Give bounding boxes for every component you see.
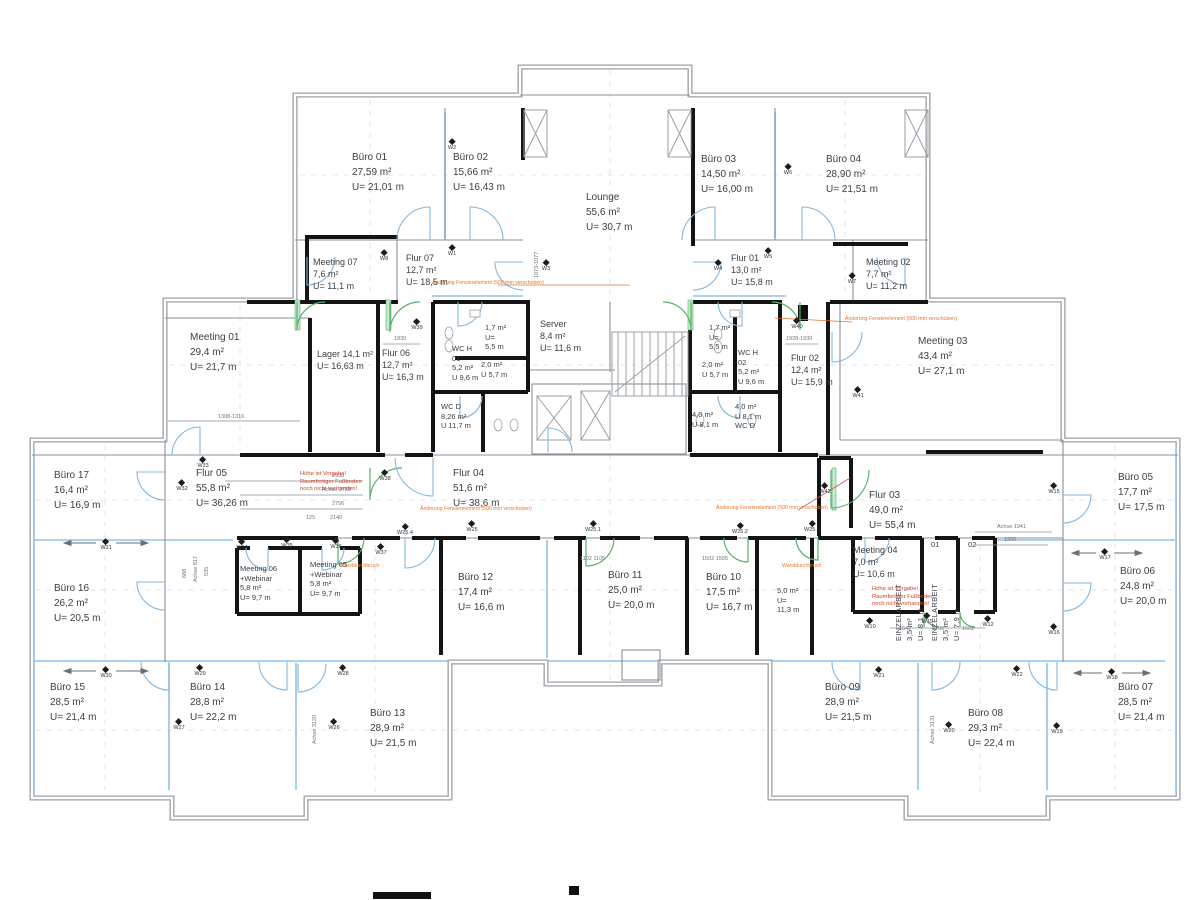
room-label-text: Flur 06 (382, 347, 424, 359)
revision-note-orange: Wanddurchbruch (782, 563, 821, 569)
room-label-vorraum-rechts: 2,0 m²U 5,7 m (702, 360, 728, 379)
window-marker-W25: W25 (466, 521, 477, 533)
window-marker-icon (924, 612, 930, 618)
dimension-text: 1928-1930 (786, 336, 812, 342)
room-label-text: Meeting 06 (240, 564, 277, 574)
window-marker-W38: W38 (379, 470, 390, 482)
room-label-abstell-links: 1,7 m²U=5,5 m (485, 323, 506, 352)
room-label-text: U= 20,0 m (1120, 594, 1166, 609)
window-marker-label: W15 (1048, 489, 1059, 495)
room-label-text: 28,90 m² (826, 167, 878, 182)
room-label-meeting-02: Meeting 027,7 m²U= 11,2 m (866, 256, 911, 292)
room-label-text: U= 21,01 m (352, 180, 404, 195)
room-label-text: U= 22,2 m (190, 710, 236, 725)
window-marker-icon (985, 615, 991, 621)
room-label-text: U= 9,7 m (310, 589, 347, 599)
room-label-text: 29,4 m² (190, 345, 239, 360)
window-marker-label: W40 (791, 324, 802, 330)
room-label-meeting-04: Meeting 047,0 m²U= 10,6 m (853, 544, 898, 580)
room-label-text: 24,8 m² (1120, 579, 1166, 594)
room-label-buero-06: Büro 0624,8 m²U= 20,0 m (1120, 564, 1166, 609)
room-label-text: Meeting 02 (866, 256, 911, 268)
room-label-server: Server8,4 m²U= 11,6 m (540, 318, 581, 354)
room-label-text: 11,3 m (777, 605, 799, 615)
window-marker-W7: W7 (848, 273, 856, 285)
window-marker-icon (381, 249, 387, 255)
window-marker-W25.1: W25.1 (585, 521, 601, 533)
room-label-text: 7,6 m² (313, 268, 358, 280)
window-marker-label: W21 (873, 673, 884, 679)
room-label-buero-03: Büro 0314,50 m²U= 16,00 m (701, 152, 753, 197)
room-label-text: 49,0 m² (869, 503, 915, 518)
room-label-flur-06: Flur 0612,7 m²U= 16,3 m (382, 347, 424, 383)
room-label-text: 55,6 m² (586, 205, 632, 220)
window-marker-icon (176, 718, 182, 724)
window-marker-label: W35 (281, 543, 292, 549)
window-marker-W29: W29 (194, 665, 205, 677)
window-marker-W1: W1 (448, 245, 456, 257)
room-label-text: 5,5 m (709, 342, 730, 352)
window-marker-W11: W11 (922, 613, 933, 625)
dimension-text: 1073-1077 (534, 252, 540, 278)
dimension-text: 1830 (394, 336, 406, 342)
window-marker-W22: W22 (1011, 666, 1022, 678)
room-label-text: Büro 02 (453, 150, 505, 165)
room-label-text: Büro 17 (54, 468, 100, 483)
staircase (612, 332, 688, 396)
room-label-text: U= 9,7 m (240, 593, 277, 603)
room-label-text: Büro 13 (370, 706, 416, 721)
revision-note-text: Raumfertiger Fußboden (300, 479, 362, 487)
room-label-nebenraum-40: 4,0 m²U 8,1 m (692, 410, 718, 429)
room-label-text: 13,0 m² (731, 264, 773, 276)
window-marker-icon (103, 666, 109, 672)
revision-note-red: Höhe ist Vorgabe!Raumfertiger Fußbodenno… (300, 471, 362, 494)
room-label-text: Meeting 04 (853, 544, 898, 556)
room-label-meeting-07: Meeting 077,6 m²U= 11,1 m (313, 256, 358, 292)
room-label-text: Büro 06 (1120, 564, 1166, 579)
room-label-buero-12: Büro 1217,4 m²U= 16,6 m (458, 570, 504, 615)
window-marker-W3: W3 (542, 260, 550, 272)
window-marker-W35: W35 (281, 537, 292, 549)
room-label-buero-09: Büro 0928,9 m²U= 21,5 m (825, 680, 871, 725)
window-marker-icon (737, 522, 743, 528)
room-label-einzelarbeit-02: EINZELARBEIT3,5 m²U= 7,9 m (929, 584, 962, 641)
window-marker-icon (855, 386, 861, 392)
window-marker-W31: W31 (100, 539, 111, 551)
window-marker-icon (794, 317, 800, 323)
room-label-text: U= (709, 333, 730, 343)
room-label-text: WC D (735, 421, 761, 431)
room-label-text: U= 21,4 m (1118, 710, 1164, 725)
room-label-buero-05: Büro 0517,7 m²U= 17,5 m (1118, 470, 1164, 515)
room-label-text: U= 15,9 m (791, 376, 833, 388)
window-marker-label: W20 (943, 728, 954, 734)
room-label-text: 2,0 m² (702, 360, 728, 370)
room-label-text: Meeting 07 (313, 256, 358, 268)
room-label-wc-h-02: WC H025,2 m²U 9,6 m (738, 348, 764, 386)
window-marker-icon (469, 520, 475, 526)
window-marker-icon (1051, 482, 1057, 488)
room-label-text: 12,7 m² (406, 264, 448, 276)
room-label-text: U= 16,3 m (382, 371, 424, 383)
window-marker-W37: W37 (375, 544, 386, 556)
room-label-wc-d-links: WC D8,26 m²U 11,7 m (441, 402, 471, 431)
room-label-buero-11: Büro 1125,0 m²U= 20,0 m (608, 568, 654, 613)
window-marker-label: W25.3 (804, 527, 820, 533)
room-label-text: U 5,7 m (702, 370, 728, 380)
window-marker-icon (1051, 623, 1057, 629)
dimension-text: 1900 (1004, 537, 1016, 543)
room-label-flur-03: Flur 0349,0 m²U= 55,4 m (869, 488, 915, 533)
window-marker-label: W25 (466, 527, 477, 533)
window-marker-W32: W32 (176, 480, 187, 492)
window-marker-label: W25.4 (397, 530, 413, 536)
room-label-text: 8,26 m² (441, 412, 471, 422)
room-label-text: 8,4 m² (540, 330, 581, 342)
window-marker-icon (715, 259, 721, 265)
room-label-vorraum-links: 2,0 m²U 5,7 m (481, 360, 507, 379)
revision-note-text: noch nicht vorhanden! (300, 486, 362, 494)
window-marker-label: W4 (714, 266, 722, 272)
room-label-text: 01 (931, 540, 939, 550)
revision-note-orange: Änderung Fensterelement (500 mm verschob… (420, 506, 532, 512)
window-marker-W25.4: W25.4 (397, 524, 413, 536)
window-marker-icon (179, 479, 185, 485)
room-label-text: +Webinar (240, 574, 277, 584)
floor-plan-canvas: Büro 0127,59 m²U= 21,01 mBüro 0215,66 m²… (0, 0, 1200, 900)
window-marker-W18: W18 (1106, 669, 1117, 681)
room-label-text: Server (540, 318, 581, 330)
window-marker-label: W37 (375, 550, 386, 556)
room-label-text: WC H (738, 348, 764, 358)
window-marker-label: W7 (848, 279, 856, 285)
room-label-text: U= 10,6 m (853, 568, 898, 580)
room-label-text: 5,8 m² (240, 583, 277, 593)
room-label-text: U= 16,63 m (317, 360, 373, 372)
window-marker-icon (414, 318, 420, 324)
room-label-text: U= 7,9 m (951, 584, 962, 641)
room-label-text: U= 27,1 m (918, 364, 967, 379)
room-label-einzel-01-nr: 01 (931, 540, 939, 550)
room-label-flur-04: Flur 0451,6 m²U= 38,6 m (453, 466, 499, 511)
window-marker-label: W5 (764, 254, 772, 260)
room-label-text: U= 30,7 m (586, 220, 632, 235)
window-marker-icon (340, 664, 346, 670)
room-label-text: U= 11,1 m (313, 280, 358, 292)
room-label-text: U 8,1 m (735, 412, 761, 422)
room-label-text: 1,7 m² (485, 323, 506, 333)
window-marker-icon (543, 259, 549, 265)
room-label-text: Büro 14 (190, 680, 236, 695)
room-label-text: 15,66 m² (453, 165, 505, 180)
window-marker-icon (1109, 668, 1115, 674)
room-label-text: 3,5 m² (940, 584, 951, 641)
room-label-text: U= 16,6 m (458, 600, 504, 615)
window-marker-W12: W12 (982, 616, 993, 628)
window-marker-icon (590, 520, 596, 526)
room-label-text: U= 15,8 m (731, 276, 773, 288)
room-label-text: Flur 07 (406, 252, 448, 264)
room-label-text: +Webinar (310, 570, 347, 580)
window-marker-label: W10 (864, 624, 875, 630)
window-marker-W25.3: W25.3 (804, 521, 820, 533)
window-marker-label: W12 (982, 622, 993, 628)
window-marker-icon (765, 247, 771, 253)
room-label-text: U= (777, 596, 799, 606)
window-marker-label: W2 (448, 145, 456, 151)
room-label-text: 26,2 m² (54, 596, 100, 611)
window-marker-label: W33 (197, 463, 208, 469)
room-label-text: 02 (738, 358, 764, 368)
room-label-raum-50: 5,0 m²U=11,3 m (777, 586, 799, 615)
window-marker-W4: W4 (714, 260, 722, 272)
room-label-einzel-02-nr: 02 (968, 540, 976, 550)
window-marker-label: W42 (819, 489, 830, 495)
room-label-text: Büro 01 (352, 150, 404, 165)
room-label-text: 01 (452, 354, 478, 364)
room-label-text: U= (485, 333, 506, 343)
room-label-buero-04: Büro 0428,90 m²U= 21,51 m (826, 152, 878, 197)
room-label-text: 7,7 m² (866, 268, 911, 280)
room-label-text: 27,59 m² (352, 165, 404, 180)
direction-arrows (64, 541, 1150, 676)
room-label-text: U 9,6 m (452, 373, 478, 383)
revision-note-text: Raumfertiger Fußboden (872, 594, 934, 602)
window-marker-label: W27 (173, 725, 184, 731)
window-marker-icon (867, 617, 873, 623)
room-label-text: 51,6 m² (453, 481, 499, 496)
room-label-wc-h-01: WC H015,2 m²U 9,6 m (452, 344, 478, 382)
room-label-text: Meeting 03 (918, 334, 967, 349)
window-marker-W40: W40 (791, 318, 802, 330)
room-label-text: 29,3 m² (968, 721, 1014, 736)
window-marker-W16: W16 (1048, 624, 1059, 636)
room-label-text: U 5,7 m (481, 370, 507, 380)
window-marker-W42: W42 (819, 483, 830, 495)
room-label-text: U= 16,00 m (701, 182, 753, 197)
window-marker-W41: W41 (852, 387, 863, 399)
room-label-buero-08: Büro 0829,3 m²U= 22,4 m (968, 706, 1014, 751)
window-marker-icon (239, 538, 245, 544)
room-label-text: 4,0 m² (692, 410, 718, 420)
window-marker-W34: W34 (236, 539, 247, 551)
revision-note-text: noch nicht vorhanden! (872, 601, 934, 609)
facade-bracing (524, 110, 928, 157)
room-label-flur-05: Flur 0555,8 m²U= 36,26 m (196, 466, 248, 511)
window-marker-W15: W15 (1048, 483, 1059, 495)
window-marker-label: W3 (542, 266, 550, 272)
room-label-text: 2,0 m² (481, 360, 507, 370)
room-label-text: 02 (968, 540, 976, 550)
room-label-text: 55,8 m² (196, 481, 248, 496)
window-marker-label: W22 (1011, 672, 1022, 678)
room-label-text: 28,9 m² (370, 721, 416, 736)
dimension-text: 125 (306, 515, 315, 521)
window-marker-W27: W27 (173, 719, 184, 731)
room-label-buero-10: Büro 1017,5 m²U= 16,7 m (706, 570, 752, 615)
floor-plan-drawing (0, 0, 1200, 900)
dimension-text: Achse 3131 (930, 715, 936, 744)
room-label-text: U= 11,2 m (866, 280, 911, 292)
room-label-text: U= 21,51 m (826, 182, 878, 197)
room-label-text: 5,0 m² (777, 586, 799, 596)
window-marker-W26: W26 (328, 719, 339, 731)
room-label-buero-15: Büro 1528,5 m²U= 21,4 m (50, 680, 96, 725)
dimension-text: 1642 (899, 626, 911, 632)
room-label-text: Büro 12 (458, 570, 504, 585)
dimension-text: 688 (182, 569, 188, 578)
room-label-text: 12,7 m² (382, 359, 424, 371)
window-marker-icon (946, 721, 952, 727)
room-label-text: Lager 14,1 m² (317, 348, 373, 360)
window-marker-icon (333, 537, 339, 543)
dimension-text: 1502 (962, 626, 974, 632)
room-label-text: U= 16,9 m (54, 498, 100, 513)
room-label-text: 5,2 m² (738, 367, 764, 377)
window-marker-label: W41 (852, 393, 863, 399)
dimension-text: 1502 1505 (702, 556, 728, 562)
window-marker-label: W25.2 (732, 529, 748, 535)
room-label-text: U= 21,4 m (50, 710, 96, 725)
window-marker-label: W26 (328, 725, 339, 731)
room-label-buero-17: Büro 1716,4 m²U= 16,9 m (54, 468, 100, 513)
window-marker-label: W6 (784, 170, 792, 176)
window-marker-icon (1102, 548, 1108, 554)
room-label-text: Flur 04 (453, 466, 499, 481)
window-marker-W20: W20 (943, 722, 954, 734)
room-label-text: Büro 16 (54, 581, 100, 596)
window-marker-label: W30 (100, 673, 111, 679)
room-label-text: 5,8 m² (310, 579, 347, 589)
dimension-text: 1308-1316 (218, 414, 244, 420)
dimension-text: Achse 3120 (312, 715, 318, 744)
room-label-buero-01: Büro 0127,59 m²U= 21,01 m (352, 150, 404, 195)
room-label-text: Büro 08 (968, 706, 1014, 721)
window-marker-icon (1054, 722, 1060, 728)
room-label-text: 1,7 m² (709, 323, 730, 333)
window-marker-icon (449, 138, 455, 144)
dimension-text: 535 (204, 567, 210, 576)
room-label-text: 16,4 m² (54, 483, 100, 498)
window-marker-icon (876, 666, 882, 672)
revision-note-orange: Änderung Fensterelement (500 mm verschob… (845, 316, 957, 322)
dimension-text: 1102 1105 (580, 556, 605, 562)
window-marker-W5: W5 (764, 248, 772, 260)
window-marker-icon (785, 163, 791, 169)
room-label-text: U= 16,43 m (453, 180, 505, 195)
window-marker-icon (378, 543, 384, 549)
room-label-text: WC H (452, 344, 478, 354)
room-label-text: U 9,6 m (738, 377, 764, 387)
window-marker-label: W16 (1048, 630, 1059, 636)
room-label-text: U= 22,4 m (968, 736, 1014, 751)
room-label-text: Büro 09 (825, 680, 871, 695)
room-label-text: 28,5 m² (50, 695, 96, 710)
dimension-text: 2756 (332, 501, 344, 507)
window-marker-icon (449, 244, 455, 250)
window-marker-icon (382, 469, 388, 475)
window-marker-W8: W8 (380, 250, 388, 262)
window-marker-label: W31 (100, 545, 111, 551)
window-marker-label: W18 (1106, 675, 1117, 681)
interior-walls (32, 95, 1178, 680)
window-marker-icon (849, 272, 855, 278)
window-marker-icon (103, 538, 109, 544)
revision-note-text: Höhe ist Vorgabe! (300, 471, 362, 479)
room-label-meeting-03: Meeting 0343,4 m²U= 27,1 m (918, 334, 967, 379)
window-marker-label: W38 (379, 476, 390, 482)
window-marker-W6: W6 (784, 164, 792, 176)
window-marker-icon (402, 523, 408, 529)
room-label-lager: Lager 14,1 m²U= 16,63 m (317, 348, 373, 372)
window-marker-W36: W36 (330, 538, 341, 550)
window-marker-W19: W19 (1051, 723, 1062, 735)
window-marker-W33: W33 (197, 457, 208, 469)
room-label-flur-02: Flur 0212,4 m²U= 15,9 m (791, 352, 833, 388)
window-marker-label: W29 (194, 671, 205, 677)
room-label-text: 12,4 m² (791, 364, 833, 376)
room-label-text: U= 55,4 m (869, 518, 915, 533)
room-label-text: 17,4 m² (458, 585, 504, 600)
window-marker-label: W36 (330, 544, 341, 550)
revision-note-text: Höhe ist Vorgabe! (872, 586, 934, 594)
room-label-buero-07: Büro 0728,5 m²U= 21,4 m (1118, 680, 1164, 725)
window-marker-W30: W30 (100, 667, 111, 679)
room-label-text: WC D (441, 402, 471, 412)
room-label-text: 28,9 m² (825, 695, 871, 710)
room-label-text: 17,7 m² (1118, 485, 1164, 500)
room-label-meeting-01: Meeting 0129,4 m²U= 21,7 m (190, 330, 239, 375)
revision-note-red: Höhe ist Vorgabe!Raumfertiger Fußbodenno… (872, 586, 934, 609)
window-marker-icon (284, 536, 290, 542)
room-label-text: Flur 03 (869, 488, 915, 503)
room-label-text: 28,8 m² (190, 695, 236, 710)
window-marker-icon (197, 664, 203, 670)
window-marker-icon (1014, 665, 1020, 671)
room-label-text: 7,0 m² (853, 556, 898, 568)
revision-note-orange: Änderung Fensterelement (500 mm verschob… (432, 280, 544, 286)
window-marker-W39: W39 (411, 319, 422, 331)
window-marker-icon (331, 718, 337, 724)
room-label-abstell-rechts: 1,7 m²U=5,5 m (709, 323, 730, 352)
room-label-text: 17,5 m² (706, 585, 752, 600)
window-marker-label: W1 (448, 251, 456, 257)
room-label-text: U 11,7 m (441, 421, 471, 431)
room-label-text: Büro 05 (1118, 470, 1164, 485)
window-marker-icon (200, 456, 206, 462)
room-label-text: Büro 04 (826, 152, 878, 167)
dimension-text: 2140 (330, 515, 342, 521)
dimension-text: Achse 1941 (997, 524, 1026, 530)
window-marker-label: W28 (337, 671, 348, 677)
room-label-buero-16: Büro 1626,2 m²U= 20,5 m (54, 581, 100, 626)
room-label-text: U= 21,5 m (370, 736, 416, 751)
window-marker-W28: W28 (337, 665, 348, 677)
revision-note-orange: Änderung Fensterelement (500 mm verschob… (716, 505, 828, 511)
room-label-wc-d-rechts: 4,0 m²U 8,1 mWC D (735, 402, 761, 431)
room-label-text: 5,5 m (485, 342, 506, 352)
room-label-text: U= 21,5 m (825, 710, 871, 725)
room-label-text: U= 20,5 m (54, 611, 100, 626)
window-marker-W2: W2 (448, 139, 456, 151)
dimension-text: Achse 817 (193, 556, 199, 582)
window-marker-label: W19 (1051, 729, 1062, 735)
window-marker-W17: W17 (1099, 549, 1110, 561)
room-label-text: 5,2 m² (452, 363, 478, 373)
room-label-text: Büro 15 (50, 680, 96, 695)
window-marker-label: W17 (1099, 555, 1110, 561)
